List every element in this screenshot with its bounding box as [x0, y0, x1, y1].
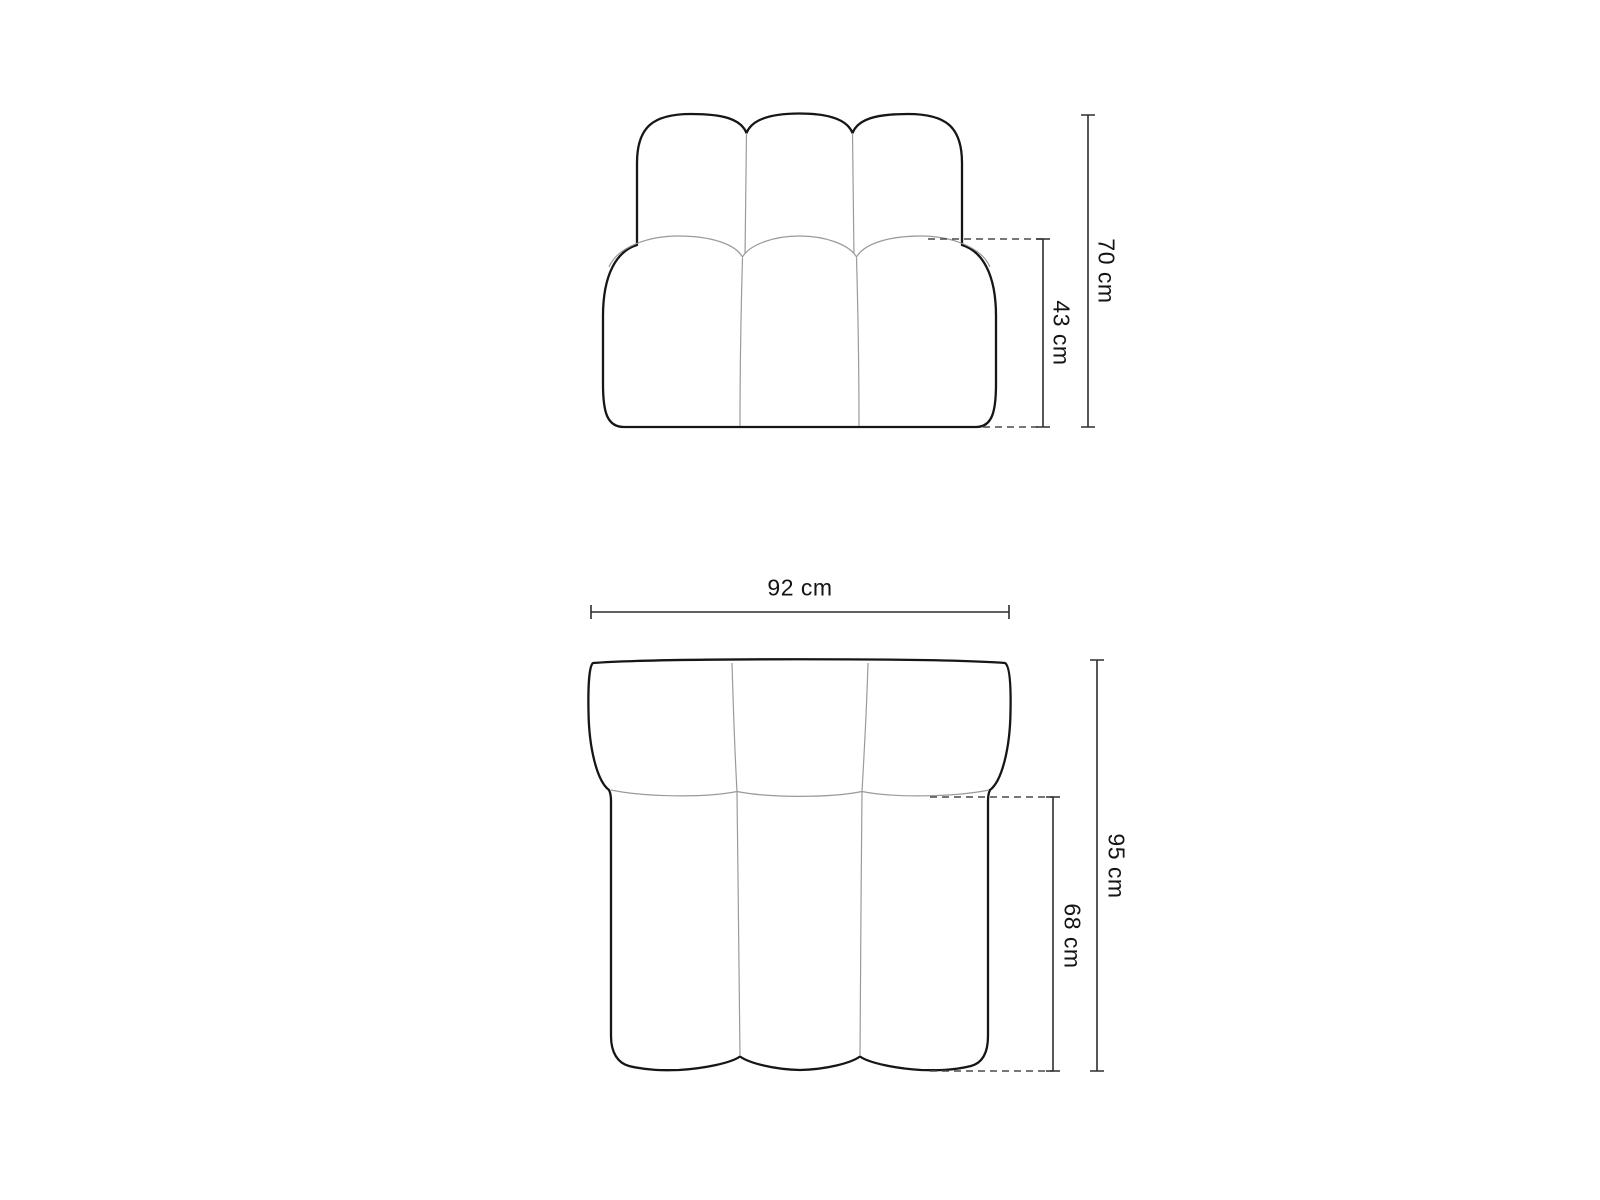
top-dimension-line-68	[1046, 797, 1060, 1071]
dimension-label-total-depth: 95 cm	[1105, 833, 1128, 898]
front-view-drawing	[603, 114, 1095, 428]
top-dimension-line-92	[591, 605, 1009, 619]
dimension-label-total-height: 70 cm	[1095, 238, 1118, 303]
top-silhouette-outline	[588, 659, 1010, 1070]
dimension-label-seat-height: 43 cm	[1050, 300, 1073, 365]
dimension-label-seat-depth: 68 cm	[1061, 903, 1084, 968]
dimension-label-width: 92 cm	[767, 577, 832, 600]
top-view-drawing	[588, 605, 1104, 1071]
diagram-canvas: 70 cm 43 cm 92 cm 95 cm 68 cm	[0, 0, 1600, 1200]
front-seat-fill	[603, 236, 996, 427]
top-dimension-line-95	[1090, 660, 1104, 1071]
